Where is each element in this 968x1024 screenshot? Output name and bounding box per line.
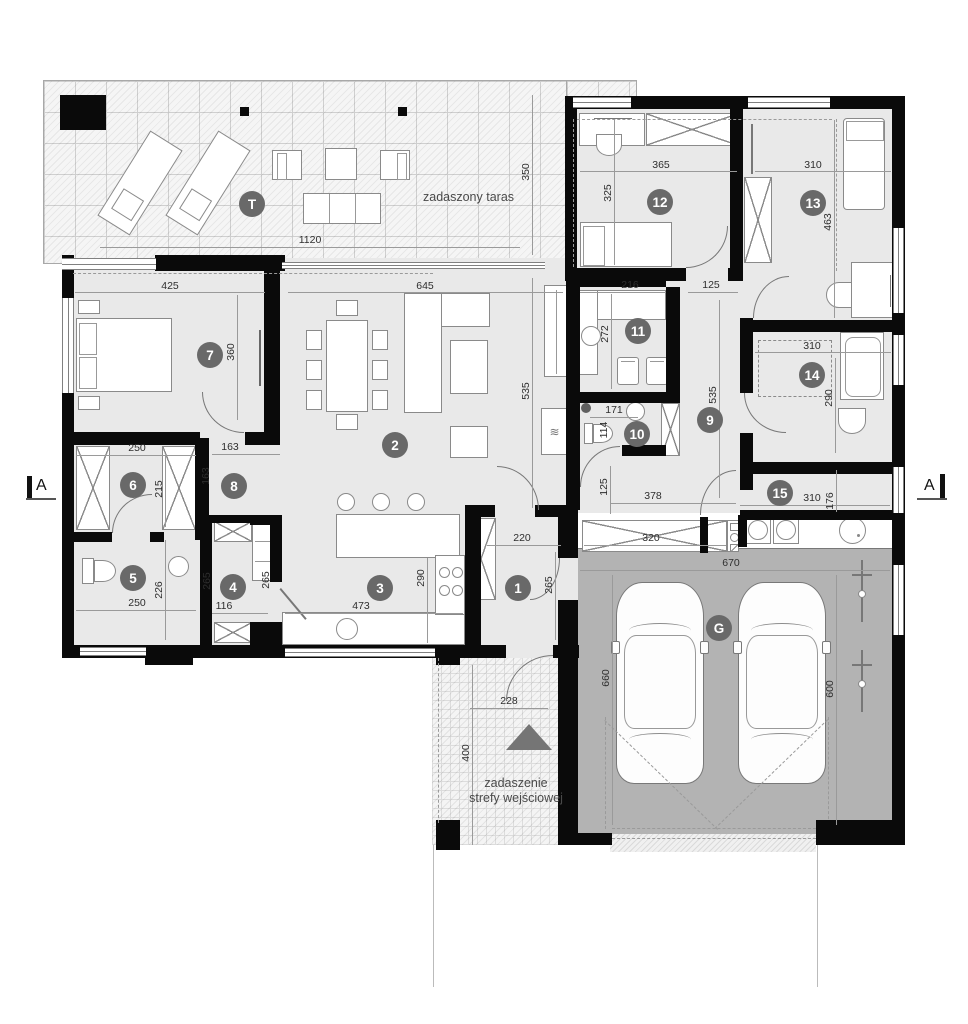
dim-room1-width: 220: [513, 532, 531, 544]
room-label-7: 7: [197, 342, 223, 368]
dim-line: [836, 575, 837, 825]
dim-room4-width: 116: [216, 600, 233, 612]
dim-line: [580, 292, 666, 293]
roof-line: [836, 119, 837, 271]
dim-line: [427, 558, 428, 643]
wall: [740, 318, 753, 393]
wardrobe: [162, 446, 196, 530]
roof-line: [577, 119, 832, 120]
bathroom-sink: [838, 408, 866, 434]
dim-line: [584, 545, 726, 546]
terrace-chair: [380, 150, 410, 180]
dining-chair: [336, 414, 358, 430]
dim-room4-depth-right: 265: [260, 571, 272, 589]
dim-room5-width: 250: [128, 597, 146, 609]
dim-line: [835, 358, 836, 453]
wall: [436, 645, 460, 665]
terrace-sofa: [303, 193, 381, 224]
dim-canopy-depth: 400: [460, 744, 472, 762]
dim-line: [100, 247, 520, 248]
coffee-table: [450, 340, 488, 394]
window: [893, 335, 904, 385]
room-label-12: 12: [647, 189, 673, 215]
bicycle-icon: [852, 650, 872, 712]
wall: [816, 820, 892, 845]
pouf: [450, 426, 488, 458]
dim-room15-length2: 310: [803, 492, 821, 504]
dim-line: [555, 552, 556, 640]
dim-room15-length1: 378: [644, 490, 662, 502]
dim-line: [532, 95, 533, 255]
dim-canopy-width: 228: [500, 695, 518, 707]
dim-room7-width: 425: [161, 280, 179, 292]
dim-line: [75, 292, 265, 293]
room-label-terrace: T: [239, 191, 265, 217]
dim-room5-depth: 226: [153, 581, 165, 599]
dim-line: [165, 455, 166, 527]
dining-chair: [336, 300, 358, 316]
dim-line: [719, 300, 720, 498]
wall: [245, 432, 264, 445]
floor-plan: ≋: [0, 0, 968, 1024]
dim-room1-depth: 265: [543, 576, 555, 594]
dim-line: [755, 352, 891, 353]
dim-room6-width: 250: [128, 442, 146, 454]
nightstand: [78, 396, 100, 410]
wall: [700, 517, 708, 553]
wall: [565, 96, 577, 280]
room-label-8: 8: [221, 473, 247, 499]
pantry-shelf: [214, 622, 252, 643]
dim-line: [611, 294, 612, 389]
roof-line: [573, 119, 574, 267]
dim-room11-width: 216: [621, 279, 639, 291]
pantry-shelf: [214, 521, 252, 542]
terrace-caption: zadaszony taras: [423, 190, 514, 204]
dim-room2-width: 645: [416, 280, 434, 292]
room-label-9: 9: [697, 407, 723, 433]
dim-line: [610, 503, 736, 504]
dryer: [773, 517, 799, 544]
dim-line: [834, 120, 835, 318]
terrace-table: [325, 148, 357, 180]
dim-line: [470, 708, 548, 709]
dining-chair: [306, 360, 322, 380]
bar-stool: [407, 493, 425, 511]
wardrobe: [744, 177, 772, 263]
wall: [150, 532, 164, 542]
dim-line: [487, 545, 561, 546]
dim-line: [76, 610, 196, 611]
wall: [465, 508, 481, 645]
dim-line: [288, 292, 563, 293]
dim-line: [740, 505, 890, 506]
dim-line: [590, 417, 638, 418]
toilet-tank: [584, 423, 593, 444]
dim-room3-depth: 290: [415, 569, 427, 587]
wall: [553, 645, 579, 658]
room-label-3: 3: [367, 575, 393, 601]
dining-chair: [372, 390, 388, 410]
wall: [250, 622, 282, 645]
cooktop-burner: [439, 567, 450, 578]
dim-room15-gap: 125: [598, 478, 610, 496]
room-label-6: 6: [120, 472, 146, 498]
room-label-10: 10: [624, 421, 650, 447]
wc-sink: [626, 402, 645, 421]
wall: [250, 515, 282, 525]
dining-chair: [372, 360, 388, 380]
chimney-dot: [581, 403, 591, 413]
wall: [566, 275, 666, 287]
window: [748, 97, 830, 108]
dim-storage-width: 320: [642, 532, 660, 544]
wardrobe: [646, 113, 738, 146]
cooktop-burner: [439, 585, 450, 596]
room-label-13: 13: [800, 190, 826, 216]
wall: [666, 287, 680, 403]
washing-machine: [646, 357, 668, 385]
car: [738, 582, 826, 784]
dim-room8-width: 163: [221, 441, 239, 453]
wall: [145, 645, 193, 665]
section-marker-right: A: [924, 477, 935, 495]
dining-chair: [306, 330, 322, 350]
dim-room7-depth: 360: [225, 343, 237, 361]
wall: [155, 255, 285, 271]
section-marker-left: A: [36, 477, 47, 495]
wall: [578, 833, 612, 845]
single-bed: [580, 222, 672, 267]
room-label-4: 4: [220, 574, 246, 600]
window: [285, 648, 435, 657]
dim-room14-width: 310: [803, 340, 821, 352]
section-marker-left-bar: [27, 476, 32, 498]
dining-table: [326, 320, 368, 412]
dim-garage-depth-left: 660: [600, 669, 612, 687]
dining-chair: [306, 390, 322, 410]
wall: [436, 820, 460, 850]
dim-terrace-depth: 350: [520, 163, 532, 181]
kitchen-counter: [282, 612, 465, 645]
dim-line: [580, 171, 737, 172]
dim-room3-width: 473: [352, 600, 370, 612]
wall: [738, 515, 747, 547]
window: [62, 298, 74, 393]
laundry-sink: [581, 326, 601, 346]
window: [573, 97, 631, 108]
dim-line: [612, 575, 613, 825]
dim-line: [285, 613, 463, 614]
car: [616, 582, 704, 784]
window: [893, 467, 904, 513]
nightstand: [78, 300, 100, 314]
dim-garage-width: 670: [722, 557, 740, 569]
wardrobe: [76, 446, 110, 530]
terrace-glass-door: [282, 262, 545, 269]
dim-line: [755, 171, 891, 172]
bathroom-sink: [168, 556, 189, 577]
wall: [566, 273, 580, 455]
room-label-14: 14: [799, 362, 825, 388]
entrance-arrow-icon: [506, 724, 552, 750]
room-label-garage: G: [706, 615, 732, 641]
bar-stool: [337, 493, 355, 511]
wall: [622, 445, 666, 456]
double-bed: [76, 318, 172, 392]
sofa: [404, 293, 442, 413]
room-label-11: 11: [625, 318, 651, 344]
wall: [566, 455, 580, 510]
dim-line: [472, 665, 473, 845]
wall: [74, 532, 112, 542]
dim-room2-depth: 535: [520, 382, 532, 400]
room-label-2: 2: [382, 432, 408, 458]
apron-line: [612, 828, 816, 829]
section-marker-right-underline: [917, 498, 947, 500]
dim-line: [76, 455, 196, 456]
dim-room10-depth: 114: [598, 422, 610, 439]
dim-hall9-depth: 535: [707, 386, 719, 404]
dim-room12-width: 365: [652, 159, 670, 171]
window: [893, 228, 904, 313]
wall: [740, 320, 905, 332]
dim-line: [610, 466, 611, 514]
dim-line: [836, 470, 837, 512]
kitchen-sink: [336, 618, 358, 640]
cooktop-burner: [452, 567, 463, 578]
dim-room11-depth: 272: [599, 325, 611, 343]
driveway-line: [817, 845, 818, 987]
section-marker-left-underline: [26, 498, 56, 500]
washer: [745, 517, 771, 544]
wall: [465, 505, 495, 517]
dim-room12-depth: 325: [602, 184, 614, 202]
dim-line: [614, 120, 615, 265]
wall: [740, 510, 893, 520]
wall: [566, 445, 580, 456]
bar-stool: [372, 493, 390, 511]
wall: [740, 462, 905, 474]
mirror-line: [751, 124, 753, 174]
fireplace: ≋: [541, 408, 568, 455]
dim-line: [688, 292, 738, 293]
dim-room6-depth: 215: [153, 480, 165, 498]
room-label-15: 15: [767, 480, 793, 506]
dim-room13-width: 310: [804, 159, 822, 171]
canopy-caption-line2: strefy wejściowej: [469, 791, 563, 805]
wall: [730, 96, 743, 280]
dim-garage-depth-right: 600: [824, 680, 836, 698]
window: [62, 258, 156, 270]
desk-chair: [596, 134, 622, 156]
dim-terrace-width: 1120: [299, 234, 322, 246]
dim-line: [580, 570, 890, 571]
dim-line: [212, 454, 280, 455]
utility-sink: [839, 517, 866, 544]
roof-line: [73, 273, 433, 274]
washing-machine: [617, 357, 639, 385]
dim-hall-top: 125: [702, 279, 720, 291]
window: [893, 565, 904, 635]
dim-room13-depth: 463: [822, 213, 834, 231]
cooktop-burner: [452, 585, 463, 596]
wall: [566, 392, 680, 403]
wall: [240, 107, 249, 116]
dining-chair: [372, 330, 388, 350]
section-marker-right-bar: [940, 474, 945, 498]
dim-room14-depth: 290: [823, 389, 835, 407]
wall: [728, 268, 743, 281]
apron-line: [612, 838, 816, 839]
dim-line: [165, 540, 166, 640]
dim-line: [237, 295, 238, 420]
driveway-line: [433, 845, 434, 987]
desk-chair: [826, 282, 852, 308]
tv-line: [259, 330, 261, 386]
bathtub: [840, 332, 884, 400]
dim-room8-depth: 163: [200, 467, 212, 485]
kitchen-island: [336, 514, 460, 558]
dim-line: [212, 613, 268, 614]
door-opening: [558, 558, 578, 600]
canopy-caption-line1: zadaszenie: [484, 776, 547, 790]
wall: [60, 95, 106, 130]
wall: [398, 107, 407, 116]
terrace-chair: [272, 150, 302, 180]
dim-room10-width: 171: [605, 404, 623, 416]
room-label-5: 5: [120, 565, 146, 591]
dim-room15-depth: 176: [824, 492, 836, 510]
garage-door-guide: [828, 717, 829, 829]
media-cabinet: [544, 285, 568, 377]
canopy-edge: [438, 658, 439, 823]
toilet-tank: [82, 558, 94, 584]
garage-door-guide: [605, 717, 606, 829]
window: [80, 647, 146, 656]
dim-room4-depth-left: 265: [201, 572, 213, 590]
wall: [264, 270, 280, 445]
single-bed: [843, 118, 885, 210]
room-label-1: 1: [505, 575, 531, 601]
dim-line: [532, 278, 533, 508]
